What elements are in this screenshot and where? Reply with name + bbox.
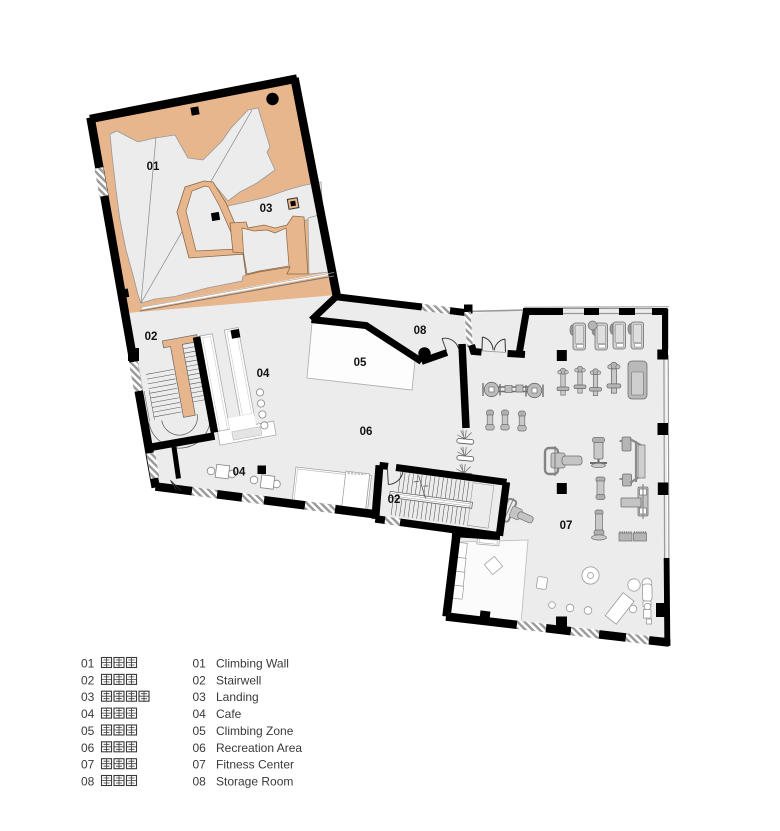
svg-text:Landing: Landing	[216, 690, 259, 704]
svg-text:06: 06	[193, 741, 207, 755]
svg-text:01: 01	[81, 657, 95, 671]
svg-text:Stairwell: Stairwell	[216, 673, 261, 687]
svg-text:08: 08	[414, 325, 427, 337]
svg-text:03: 03	[260, 203, 273, 215]
svg-text:07: 07	[193, 758, 207, 772]
svg-text:06: 06	[81, 741, 95, 755]
svg-text:02: 02	[388, 494, 401, 506]
svg-text:05: 05	[81, 724, 95, 738]
svg-text:01: 01	[193, 657, 207, 671]
svg-text:07: 07	[560, 520, 573, 532]
svg-text:03: 03	[193, 690, 207, 704]
svg-text:04: 04	[233, 467, 246, 479]
svg-text:08: 08	[193, 775, 207, 789]
svg-text:05: 05	[193, 724, 207, 738]
svg-text:05: 05	[354, 357, 367, 369]
svg-text:01: 01	[147, 161, 160, 173]
svg-text:02: 02	[145, 331, 158, 343]
svg-text:Fitness Center: Fitness Center	[216, 758, 294, 772]
svg-text:Storage Room: Storage Room	[216, 775, 293, 789]
svg-text:04: 04	[257, 368, 270, 380]
svg-text:07: 07	[81, 758, 95, 772]
svg-text:02: 02	[193, 673, 207, 687]
svg-text:Climbing Wall: Climbing Wall	[216, 657, 289, 671]
svg-text:Recreation Area: Recreation Area	[216, 741, 302, 755]
svg-text:02: 02	[81, 673, 95, 687]
svg-text:08: 08	[81, 775, 95, 789]
svg-text:06: 06	[360, 426, 373, 438]
svg-text:Cafe: Cafe	[216, 707, 242, 721]
svg-text:Climbing Zone: Climbing Zone	[216, 724, 294, 738]
svg-text:04: 04	[81, 707, 95, 721]
svg-text:03: 03	[81, 690, 95, 704]
svg-text:04: 04	[193, 707, 207, 721]
